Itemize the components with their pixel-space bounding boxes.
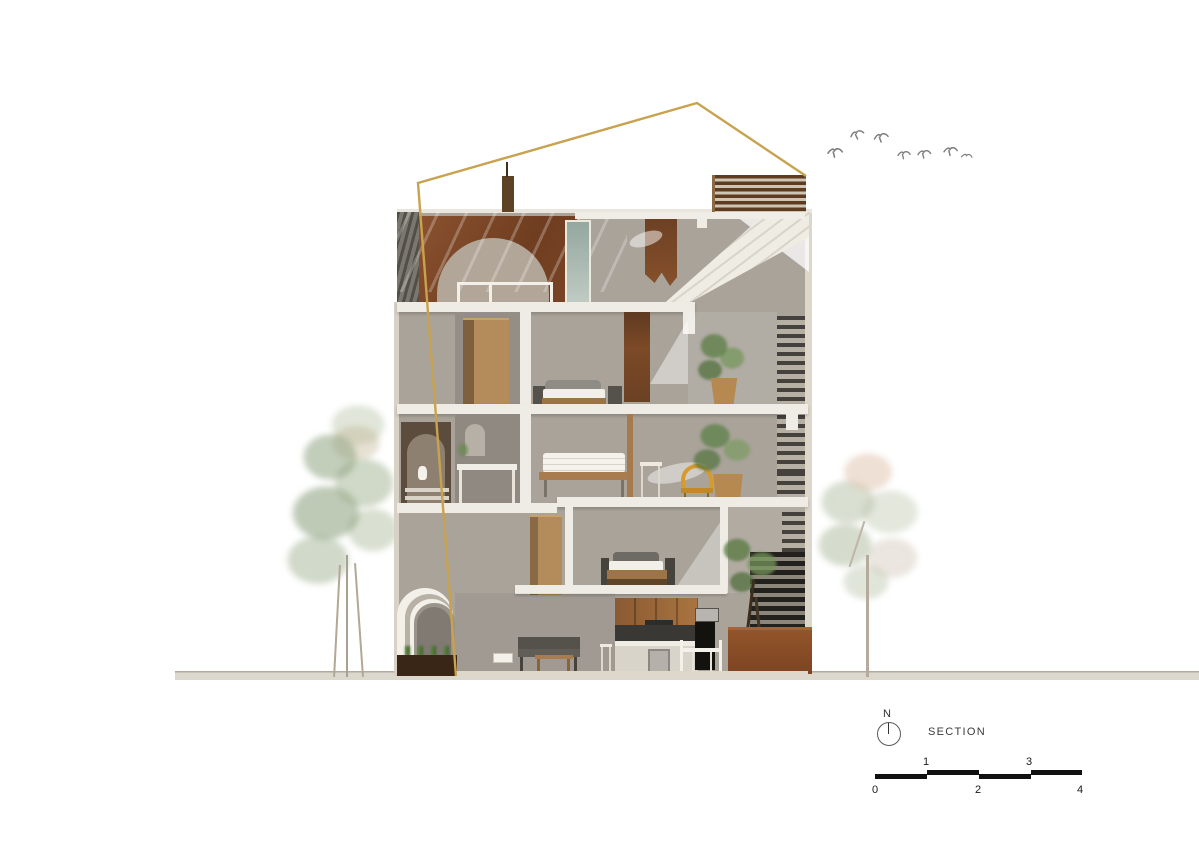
- drawing-title: SECTION: [928, 726, 986, 738]
- scale-label: 2: [975, 784, 981, 796]
- north-arrow-needle: [888, 723, 890, 734]
- scale-label: 3: [1026, 756, 1032, 768]
- scale-label: 4: [1077, 784, 1083, 796]
- scale-label: 1: [923, 756, 929, 768]
- section-overlay: [0, 0, 1199, 848]
- architectural-sheet: N SECTION 1 3 0 2 4: [0, 0, 1199, 848]
- scale-bar-segment: [979, 774, 1031, 779]
- scale-label: 0: [872, 784, 878, 796]
- scale-bar: 1 3 0 2 4: [875, 758, 1082, 798]
- scale-bar-segment: [1031, 770, 1082, 775]
- scale-bar-segment: [927, 770, 979, 775]
- birds-flock: [828, 130, 972, 159]
- section-cut-line: [418, 103, 806, 676]
- north-label: N: [883, 708, 891, 720]
- scale-bar-segment: [875, 774, 927, 779]
- north-indicator: N: [869, 708, 909, 750]
